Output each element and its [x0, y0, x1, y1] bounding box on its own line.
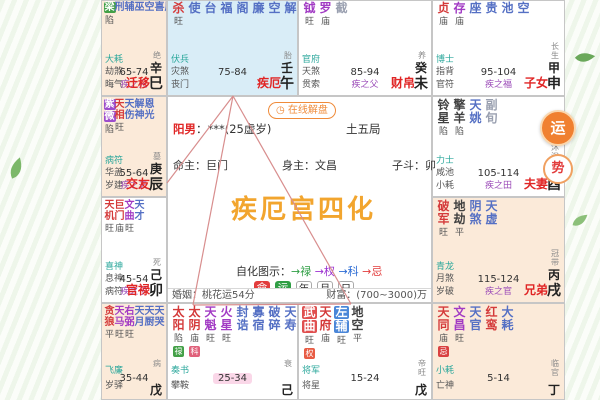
star: 恩光	[145, 99, 154, 135]
brightness-label: 旺	[125, 330, 134, 340]
star-list: 天机旺巨门庙文曲旺天才	[105, 200, 165, 234]
brightness-label: 旺	[337, 336, 346, 346]
shensha-label: 大耗	[105, 55, 123, 65]
shensha-label: 病符	[105, 156, 123, 166]
life-stage-label: 长生	[551, 43, 559, 60]
legend-quan: →权	[315, 265, 335, 278]
star: 天才	[135, 200, 144, 234]
palace-chen[interactable]: 紫微陷天相旺天伤解神恩光病符华盖岁建55-64疾之夫交友辰庚墓	[101, 96, 167, 197]
page-title: 疾厄宫四化	[168, 189, 431, 226]
zidou-label: 子斗：卯	[392, 157, 436, 173]
star: 天哭	[155, 306, 164, 340]
star: 天官	[468, 306, 483, 357]
sihua-badge: 科	[189, 346, 200, 357]
palace-wu[interactable]: 杀旺使台福阁廉空解伏兵灾煞丧门75-84疾厄午壬胎	[167, 0, 298, 96]
age-label: ：***(25虚岁)	[196, 122, 271, 136]
star: 阴煞	[468, 200, 483, 238]
palace-name-label: 交友	[126, 175, 150, 192]
star: 贪狼平	[105, 306, 114, 340]
star: 天伤	[125, 99, 134, 135]
star: 天寿	[283, 306, 298, 357]
star: 贵	[484, 2, 499, 27]
palace-si[interactable]: 梁陷刑辅巫空喜辰大耗劫煞晦气65-74疾之兄迁移巳辛绝	[101, 0, 167, 96]
stem-label: 丙	[548, 266, 560, 283]
floating-widget: 运 势	[540, 110, 576, 184]
star: 副旬	[484, 99, 499, 137]
brightness-label: 庙	[455, 17, 464, 27]
star: 太阳陷禄	[171, 306, 186, 357]
legend-ke: →科	[338, 265, 358, 278]
wealth-range-label: 财富：(700~3000)万	[326, 289, 427, 302]
brightness-label: 庙	[321, 334, 330, 344]
branch-label: 卯	[149, 280, 163, 300]
life-stage-label: 绝	[153, 52, 161, 61]
sihua-badge: 权	[304, 348, 315, 359]
star: 地劫平	[452, 200, 467, 238]
stem-label: 辛	[150, 59, 162, 76]
stem-label: 癸	[415, 59, 427, 76]
brightness-label: 庙	[439, 17, 448, 27]
star: 池	[500, 2, 515, 27]
star: 解神	[135, 99, 144, 135]
branch-label: 辰	[149, 174, 163, 194]
shensha-label: 博士	[436, 55, 454, 65]
center-panel: ◷ 在线解盘 阳男：***(25虚岁) 土五局 命主：巨门 身主：文昌 子斗：卯…	[167, 96, 432, 303]
palace-name-label: 财帛	[391, 74, 415, 91]
brightness-label: 旺	[305, 17, 314, 27]
decade-range-label: 15-24	[299, 373, 431, 384]
palace-name-label: 迁移	[126, 74, 150, 91]
star: 大耗	[500, 306, 515, 357]
star: 右弼旺	[125, 306, 134, 340]
brightness-label: 庙	[115, 224, 124, 234]
star-list: 贪狼平天马旺右弼旺天月天厨天哭	[105, 306, 165, 340]
star: 天虚	[484, 200, 499, 238]
star: 喜	[155, 2, 164, 26]
branch-label: 巳	[149, 73, 163, 93]
brightness-label: 旺	[305, 336, 314, 346]
stem-label: 庚	[150, 160, 162, 177]
star-list: 杀旺使台福阁廉空解	[171, 2, 296, 27]
star-list: 武曲旺权天府庙左辅旺地空平	[302, 306, 430, 359]
brightness-label: 陷	[439, 127, 448, 137]
brightness-label: 旺	[206, 334, 215, 344]
leaf-icon	[571, 211, 590, 230]
life-stage-label: 墓	[153, 153, 161, 162]
star: 梁陷	[105, 2, 114, 26]
life-stage-label: 冠带	[551, 250, 559, 267]
bureau-label: 土五局	[346, 121, 381, 137]
branch-label: 未	[414, 73, 428, 93]
star: 天同庙忌	[436, 306, 451, 357]
star: 天厨	[145, 306, 154, 340]
brightness-label: 陷	[105, 125, 114, 135]
star: 天机旺	[105, 200, 114, 234]
clock-icon: ◷	[276, 105, 288, 116]
star: 破碎	[267, 306, 282, 357]
sihua-badge: 忌	[438, 346, 449, 357]
brightness-label: 旺	[455, 334, 464, 344]
brightness-label: 旺	[115, 330, 124, 340]
online-reading-label: 在线解盘	[288, 105, 328, 116]
life-stage-label: 衰	[284, 360, 292, 369]
brightness-label: 陷	[174, 334, 183, 344]
score-strip: 婚姻：桃花运54分 财富：(700~3000)万	[168, 288, 431, 302]
brightness-label: 旺	[222, 334, 231, 344]
star: 文昌旺	[452, 306, 467, 357]
gender-label: 阳男	[173, 122, 196, 136]
brightness-label: 旺	[439, 228, 448, 238]
star: 福	[219, 2, 234, 27]
star: 天马旺	[115, 306, 124, 340]
sihua-badge: 禄	[173, 346, 184, 357]
star: 辅	[125, 2, 134, 26]
branch-label: 申	[547, 73, 561, 93]
palace-chou[interactable]: 太阳陷禄太阴庙科天魁旺火星旺封诰寡宿破碎天寿奏书攀鞍25-34己衰	[167, 303, 298, 400]
brightness-label: 旺	[125, 224, 134, 234]
star-list: 太阳陷禄太阴庙科天魁旺火星旺封诰寡宿破碎天寿	[171, 306, 296, 357]
shensha-label: 力士	[436, 156, 454, 166]
branch-label: 戌	[547, 280, 561, 300]
sihua-legend: 自化图示：→禄 →权 →科 →忌	[236, 263, 382, 279]
star: 太阴庙科	[187, 306, 202, 357]
palace-hai[interactable]: 天同庙忌文昌旺天官红鸾大耗小耗亡神5-14丁临官	[432, 303, 565, 400]
star: 天府庙	[318, 306, 333, 359]
brightness-label: 陷	[105, 16, 114, 26]
decade-range-label: 25-34	[168, 373, 297, 384]
star: 火星旺	[219, 306, 234, 357]
star: 罗庙	[318, 2, 333, 27]
star: 天月	[135, 306, 144, 340]
palace-name-label: 兄弟	[524, 281, 548, 298]
stem-label: 甲	[548, 59, 560, 76]
shen-master-label: 身主：文昌	[282, 157, 337, 173]
gender-line: 阳男：***(25虚岁)	[173, 121, 271, 137]
star: 天相旺	[115, 99, 124, 135]
stem-label: 己	[150, 266, 162, 283]
star: 左辅旺	[334, 306, 349, 359]
star: 使	[187, 2, 202, 27]
star: 铃星陷	[436, 99, 451, 137]
star: 擎羊陷	[452, 99, 467, 137]
star-list: 紫微陷天相旺天伤解神恩光	[105, 99, 165, 135]
star: 杀旺	[171, 2, 186, 27]
palace-name-label: 子女	[524, 74, 548, 91]
life-stage-label: 养	[418, 52, 426, 61]
star: 阁	[235, 2, 250, 27]
palace-yin[interactable]: 贪狼平天马旺右弼旺天月天厨天哭飞廉岁驿35-44戊病	[101, 303, 167, 400]
brightness-label: 旺	[174, 17, 183, 27]
fortune-float-button[interactable]: 运	[540, 110, 576, 146]
brightness-label: 旺	[105, 224, 114, 234]
brightness-label: 平	[455, 228, 464, 238]
shensha-label: 伏兵	[171, 55, 189, 65]
palace-xu[interactable]: 破军旺地劫平阴煞天虚青龙月煞岁破115-124疾之官兄弟戌丙冠带	[432, 197, 565, 303]
stem-label: 戊	[150, 381, 162, 398]
star: 空	[145, 2, 154, 26]
life-stage-label: 临官	[551, 360, 559, 377]
shensha-label: 青龙	[436, 262, 454, 272]
branch-label: 午	[280, 73, 294, 93]
star: 武曲旺权	[302, 306, 317, 359]
star: 文曲旺	[125, 200, 134, 234]
fortune-float-button-2[interactable]: 势	[543, 154, 573, 184]
shensha-label: 官府	[302, 55, 320, 65]
palace-shen[interactable]: 贞庙存庙座贵池空博士指背官符95-104疾之福子女申甲长生	[432, 0, 565, 96]
marriage-score-label: 婚姻：桃花运54分	[172, 289, 255, 302]
star-list: 梁陷刑辅巫空喜辰	[105, 2, 165, 26]
stem-label: 壬	[281, 59, 293, 76]
legend-prefix: 自化图示：	[236, 265, 291, 278]
brightness-label: 庙	[321, 17, 330, 27]
star: 贞庙	[436, 2, 451, 27]
star-list: 破军旺地劫平阴煞天虚	[436, 200, 563, 238]
stem-label: 戊	[415, 381, 427, 398]
brightness-label: 庙	[190, 334, 199, 344]
shensha-label: 丧门	[171, 80, 189, 90]
star: 巫	[135, 2, 144, 26]
legend-lu: →禄	[291, 265, 311, 278]
star: 台	[203, 2, 218, 27]
star: 空	[516, 2, 531, 27]
star: 红鸾	[484, 306, 499, 357]
online-reading-button[interactable]: ◷ 在线解盘	[268, 102, 336, 119]
brightness-label: 庙	[439, 334, 448, 344]
brightness-label: 旺	[115, 123, 124, 133]
decade-range-label: 5-14	[433, 373, 564, 384]
star: 天姚	[468, 99, 483, 137]
star-list: 贞庙存庙座贵池空	[436, 2, 563, 27]
life-stage-label: 病	[153, 360, 161, 369]
palace-mao[interactable]: 天机旺巨门庙文曲旺天才喜神息神病符45-54疾之子官禄卯己死	[101, 197, 167, 303]
star: 存庙	[452, 2, 467, 27]
life-stage-label: 帝旺	[418, 360, 426, 377]
star: 破军旺	[436, 200, 451, 238]
brightness-label: 平	[353, 334, 362, 344]
leaf-icon	[3, 155, 30, 182]
star: 廉	[251, 2, 266, 27]
star: 寡宿	[251, 306, 266, 357]
star: 巨门庙	[115, 200, 124, 234]
star: 截	[334, 2, 349, 27]
legend-ji: →忌	[362, 265, 382, 278]
brightness-label: 平	[105, 330, 114, 340]
palace-name-label: 疾厄	[257, 74, 281, 91]
stem-label: 丁	[548, 381, 560, 398]
star: 空	[267, 2, 282, 27]
life-stage-label: 胎	[284, 52, 292, 61]
shensha-label: 喜神	[105, 262, 123, 272]
star: 钺旺	[302, 2, 317, 27]
ming-master-label: 命主：巨门	[173, 157, 228, 173]
leaf-icon	[572, 44, 597, 69]
star: 座	[468, 2, 483, 27]
stem-label: 己	[281, 381, 293, 398]
star: 紫微陷	[105, 99, 114, 135]
star: 地空平	[350, 306, 365, 359]
palace-name-label: 官禄	[126, 281, 150, 298]
star: 解	[283, 2, 298, 27]
palace-wei[interactable]: 钺旺罗庙截官府天煞贯索85-94疾之父财帛未癸养	[298, 0, 432, 96]
star-list: 钺旺罗庙截	[302, 2, 430, 27]
brightness-label: 陷	[455, 127, 464, 137]
life-stage-label: 死	[153, 259, 161, 268]
palace-zi[interactable]: 武曲旺权天府庙左辅旺地空平将军将星15-24戊帝旺	[298, 303, 432, 400]
star: 刑	[115, 2, 124, 26]
star: 封诰	[235, 306, 250, 357]
star-list: 天同庙忌文昌旺天官红鸾大耗	[436, 306, 563, 357]
star: 天魁旺	[203, 306, 218, 357]
